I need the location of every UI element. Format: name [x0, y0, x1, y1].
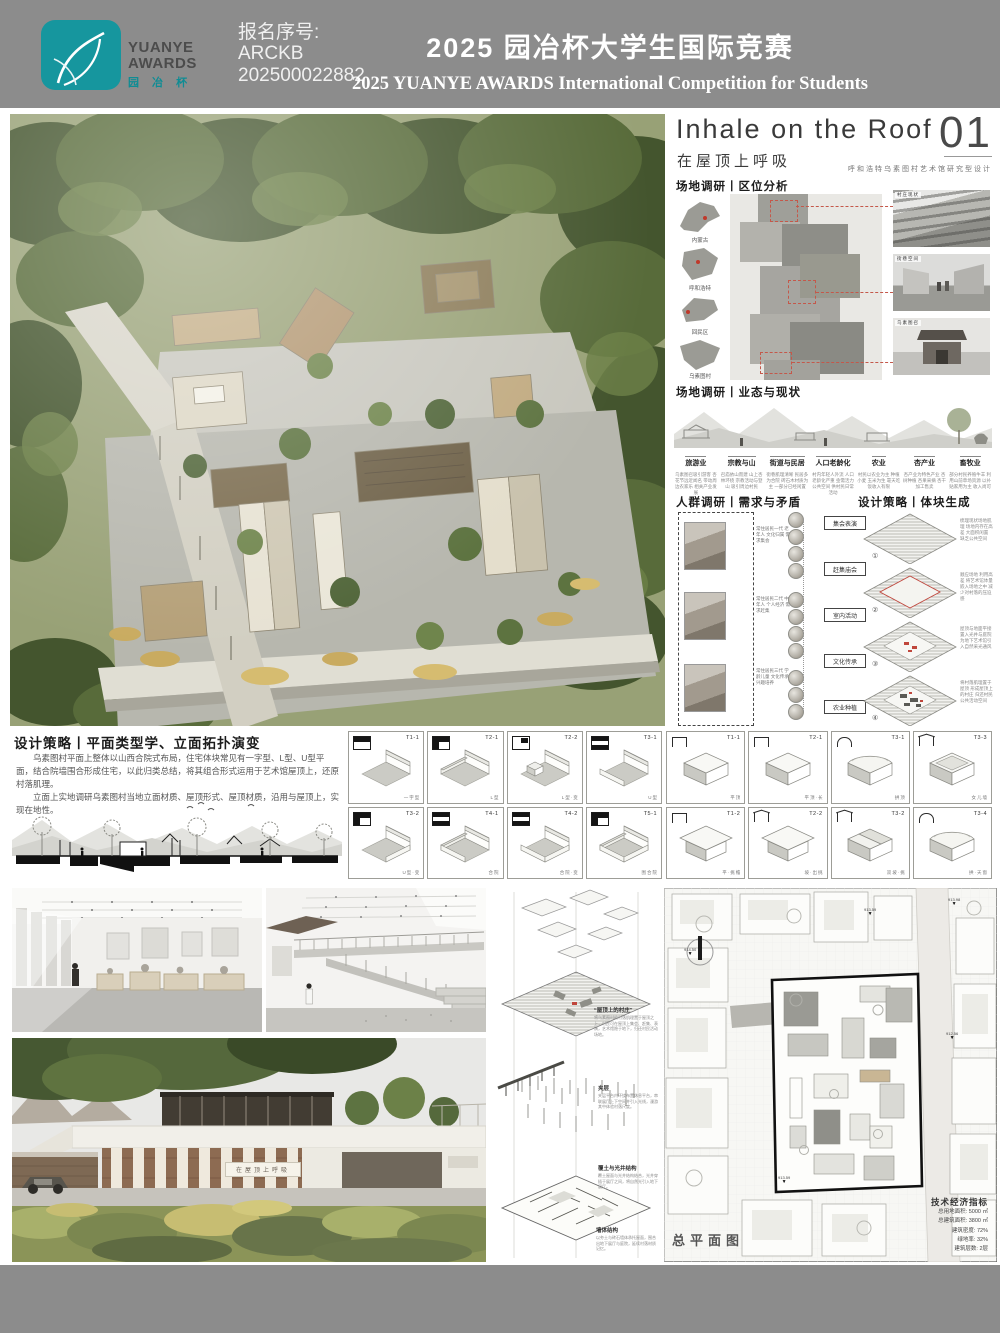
plan-type-cell: T1-1 一字型: [348, 731, 424, 804]
photo-caption-3: 乌素图召: [895, 320, 921, 326]
map-label-3: 回民区: [674, 328, 726, 336]
persona-note-2: 常住居民二代 中年人 个人经济 需求赶集: [756, 596, 792, 614]
activity-photo-dot: [788, 546, 804, 562]
strategy-heading: 设计策略丨平面类型学、立面拓扑演变: [14, 732, 261, 752]
section-people-heading: 人群调研丨需求与矛盾: [676, 494, 801, 510]
activity-photo-dot: [788, 670, 804, 686]
roof-type-cell: T3-1 拱顶: [831, 731, 910, 804]
industry-religion: 宗教与山召庙依山而建 山上杏林环绕 宗教活动与登山 吸引周边村民: [720, 452, 764, 496]
activity-photo-dot: [788, 704, 804, 720]
axo-annotation-quote: “屋顶上的村庄” 将乌素图村的村落肌理置于屋顶之上，村民可在屋顶上集会、赶集、表…: [594, 1006, 658, 1037]
footer-bar: [0, 1265, 1000, 1333]
indicator-row: 建筑层数: 2层: [860, 1245, 988, 1254]
competition-title-en: 2025 YUANYE AWARDS International Competi…: [330, 74, 890, 95]
plan-type-cell: T2-1 L型: [427, 731, 503, 804]
village-panorama-sketch: [674, 398, 992, 448]
massing-desc-4: 将村落肌理置于屋顶 形成屋顶上的村庄 归还村民公共活动空间: [960, 680, 993, 704]
callout-line-1: [796, 206, 893, 207]
roof-profile-icon: [754, 737, 769, 747]
roof-profile-icon: [837, 813, 852, 822]
indicator-row: 建筑密度: 72%: [860, 1227, 988, 1236]
type-code: T1-1: [406, 735, 419, 741]
plan-type-cell: T3-2 U型·变: [348, 807, 424, 880]
needs-connector: [803, 519, 804, 711]
logo-line1: YUANYE: [128, 40, 197, 56]
page-number-rule: [944, 156, 992, 157]
activity-photo-dot: [788, 512, 804, 528]
map-label-1: 内蒙古: [674, 236, 726, 244]
map-wusutu-village: [674, 336, 726, 374]
persona-note-3: 常住居民三代 学龄儿童 文化传承 兴趣培养: [756, 668, 792, 686]
site-callout-top: [770, 200, 798, 222]
interior-render-atrium: [266, 888, 486, 1032]
massing-num-4: ④: [872, 714, 878, 722]
facade-sign: 在屋顶上呼吸: [225, 1162, 301, 1177]
persona-photo-elder: [684, 522, 726, 570]
industry-husbandry: 畜牧业部分村民养殖牛羊 利用山前草场资源 以补贴家用为主 收入尚可: [948, 452, 992, 496]
section-location-heading: 场地调研丨区位分析: [676, 178, 789, 194]
map-label-4: 乌素图村: [674, 372, 726, 380]
roof-type-cell: T3-2 双坡·挑: [831, 807, 910, 880]
need-label-3: 室内活动: [824, 608, 866, 622]
roof-type-cell: T3-4 拱·天窗: [913, 807, 992, 880]
photo-street-space: 街巷空间: [893, 254, 990, 311]
photo-wusutu-temple: 乌素图召: [893, 318, 990, 375]
roof-type-cell: T3-3 女儿墙: [913, 731, 992, 804]
massing-num-1: ①: [872, 552, 878, 560]
roof-type-cell: T1-1 平顶: [666, 731, 745, 804]
callout-line-3: [792, 362, 893, 363]
activity-photo-dot: [788, 643, 804, 659]
project-title-en: Inhale on the Roof: [676, 114, 933, 145]
roof-type-cell: T2-1 平顶·长: [748, 731, 827, 804]
satellite-map-collage: [730, 194, 882, 380]
industry-aging: 人口老龄化村内年轻人外流 人口老龄化严重 亟需活力公共空间 供村民日常活动: [811, 452, 855, 496]
map-huimin-district: [674, 292, 726, 328]
industry-agriculture: 农业村民以农业为主 种植小麦 玉米为生 靠天吃饭收入有限: [857, 452, 901, 496]
need-label-2: 赶集庙会: [824, 562, 866, 576]
plan-type-cell: T5-1 围合院: [586, 807, 662, 880]
roof-profile-icon: [754, 813, 769, 822]
competition-title-cn: 2025 园冶杯大学生国际竞赛: [330, 26, 890, 65]
interior-render-gallery: [12, 888, 262, 1032]
yuanye-logo-icon: [40, 19, 122, 91]
logo-line2: AWARDS: [128, 56, 197, 72]
indicators-title: 技术经济指标: [860, 1196, 988, 1208]
activity-photo-dot: [788, 563, 804, 579]
spot-elevation: 912.56▼: [946, 1032, 958, 1042]
massing-desc-1: 梳理现状场地肌理 场地内存在高差 大面积闲置 缺乏公共空间: [960, 518, 993, 542]
site-callout-mid: [788, 280, 816, 304]
massing-num-3: ③: [872, 660, 878, 668]
spot-elevation: 914.50▼: [684, 948, 696, 958]
axo-annotation-mezzanine: 夹层 夹层平台内环绕布置休息平台，串联展厅上下空间并引入光线，漫游其中体验村落尺…: [598, 1084, 658, 1110]
spot-elevation: 913.59▼: [778, 1176, 790, 1186]
roof-profile-icon: [837, 737, 852, 747]
section-drawing: [12, 794, 342, 878]
indicator-row: 总建筑面积: 3800 ㎡: [860, 1217, 988, 1226]
photo-village-roofs: 村庄现状: [893, 190, 990, 247]
activity-photo-dot: [788, 529, 804, 545]
industry-apricot: 杏产业杏产业为特色产业 杏树种植 杏果采摘 杏干加工售卖: [903, 452, 947, 496]
site-plan-label: 总平面图: [672, 1230, 744, 1249]
need-label-1: 集会表演: [824, 516, 866, 530]
competition-title: 2025 园冶杯大学生国际竞赛 2025 YUANYE AWARDS Inter…: [330, 26, 890, 95]
plan-type-cell: T4-1 合院: [427, 807, 503, 880]
logo-wordmark: YUANYE AWARDS 园 冶 杯: [128, 40, 197, 90]
persona-note-1: 常住居民一代 老年人 文化归属 需求集会: [756, 526, 792, 544]
spot-elevation: 913.98▼: [948, 898, 960, 908]
roof-typology-grid: T1-1 平顶 T2-1 平顶·长 T3-1 拱顶 T3-3 女儿墙 T1-2 …: [666, 731, 992, 879]
axo-annotation-lightwell: 覆土与光井结构 覆土屋面与光井结构结合，光井穿插于展厅之间，将自然光引入地下展厅…: [598, 1164, 658, 1190]
activity-photo-dot: [788, 592, 804, 608]
project-title-cn: 在屋顶上呼吸: [677, 150, 791, 171]
persona-photo-adult: [684, 592, 726, 640]
plan-type-cell: T2-2 L型·变: [507, 731, 583, 804]
need-label-5: 农业种植: [824, 700, 866, 714]
axo-annotation-wall: 墙体结构 以夯土与砖石墙体承托屋面，围合出地下展厅与庭院，延续村落材质记忆。: [596, 1226, 658, 1252]
activity-photo-dot: [788, 609, 804, 625]
indicator-row: 绿地率: 32%: [860, 1236, 988, 1245]
roof-profile-icon: [919, 813, 934, 823]
map-inner-mongolia: [674, 196, 726, 236]
plan-type-cell: T3-1 U型: [586, 731, 662, 804]
strategy-paragraph-1: 乌素图村平面上整体以山西合院式布局，住宅体块常见有一字型、L型、U型平面，结合院…: [16, 752, 340, 790]
logo-cn: 园 冶 杯: [128, 74, 197, 90]
map-label-2: 呼和浩特: [674, 284, 726, 292]
type-caption: 一字型: [404, 795, 421, 801]
industry-tourism: 旅游业乌素图召吸引游客 杏花节远近闻名 带动周边农家乐 相关产业发展: [674, 452, 718, 496]
roof-profile-icon: [672, 813, 687, 823]
roof-type-cell: T1-2 平·挑檐: [666, 807, 745, 880]
project-subtitle: 呼和浩特乌素图村艺术馆研究型设计: [848, 164, 992, 174]
roof-profile-icon: [919, 737, 934, 746]
industry-street: 街道与民居街巷肌理清晰 民居多为合院 砖石木材质为主 一部分已经闲置: [765, 452, 809, 496]
exterior-render: [12, 1038, 486, 1262]
need-label-4: 文化传承: [824, 654, 866, 668]
massing-desc-3: 屋顶与地面平接 置入光井与庭院 为地下艺术馆引入自然采光通风: [960, 626, 993, 650]
persona-photo-child: [684, 664, 726, 712]
photo-caption-1: 村庄现状: [895, 192, 921, 198]
massing-desc-2: 顺应场地 利用高差 将艺术馆体量嵌入场地之中 减少对村落的压迫感: [960, 572, 993, 602]
spot-elevation: 913.59▼: [864, 908, 876, 918]
header-bar: YUANYE AWARDS 园 冶 杯 报名序号: ARCKB 20250002…: [0, 0, 1000, 108]
plan-type-cell: T4-2 合院·变: [507, 807, 583, 880]
site-callout-bottom: [760, 352, 792, 374]
industry-row: 旅游业乌素图召吸引游客 杏花节远近闻名 带动周边农家乐 相关产业发展 宗教与山召…: [674, 452, 992, 496]
activity-photo-dot: [788, 687, 804, 703]
callout-line-2: [816, 292, 893, 293]
plan-typology-grid: T1-1 一字型 T2-1 L型 T2-2 L型·变 T3-1 U型 T3-2 …: [348, 731, 662, 879]
massing-num-2: ②: [872, 606, 878, 614]
aerial-render-image: [10, 114, 665, 726]
section-massing-heading: 设计策略丨体块生成: [858, 494, 971, 510]
exploded-axonometric: [492, 888, 660, 1262]
map-hohhot: [674, 244, 726, 284]
photo-caption-2: 街巷空间: [895, 256, 921, 262]
activity-photo-dot: [788, 626, 804, 642]
roof-type-cell: T2-2 坡·出挑: [748, 807, 827, 880]
roof-profile-icon: [672, 737, 687, 747]
right-panel: Inhale on the Roof 01 在屋顶上呼吸 呼和浩特乌素图村艺术馆…: [672, 114, 994, 726]
page-number: 01: [939, 108, 992, 158]
indicator-row: 总用地面积: 5000 ㎡: [860, 1208, 988, 1217]
technical-indicators: 技术经济指标 总用地面积: 5000 ㎡ 总建筑面积: 3800 ㎡ 建筑密度:…: [860, 1196, 988, 1255]
